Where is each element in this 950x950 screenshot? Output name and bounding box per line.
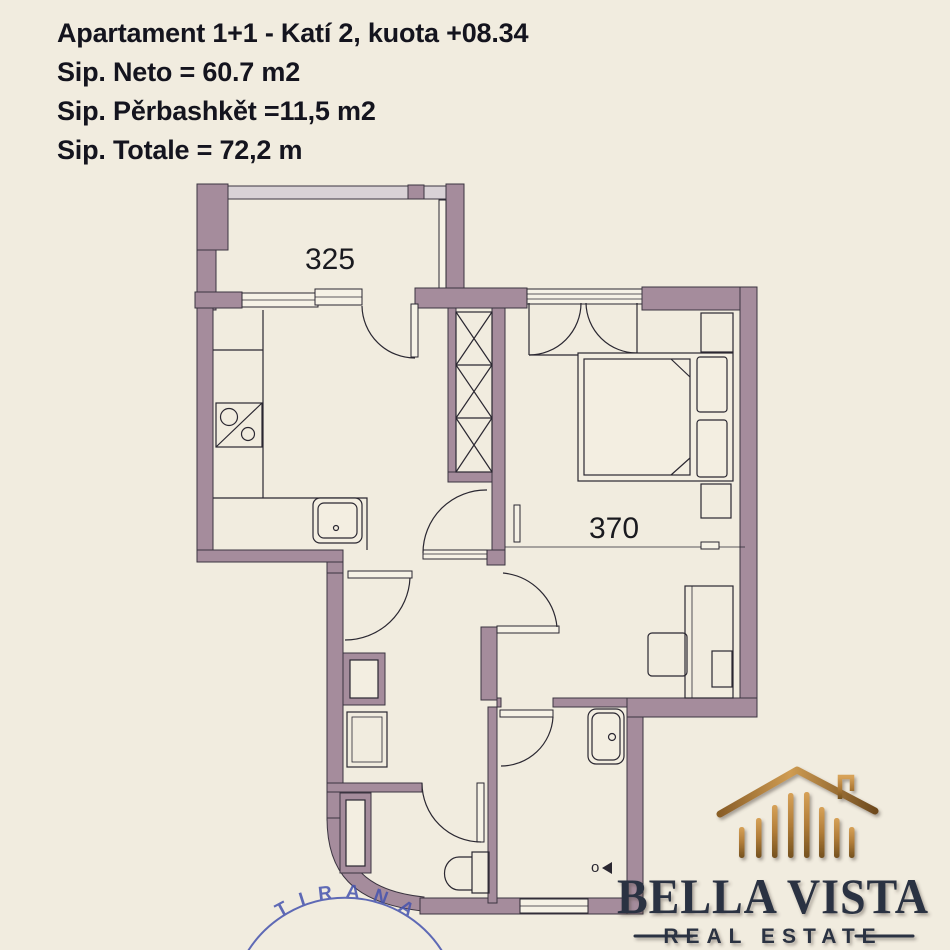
- bedroom-window: [527, 289, 642, 304]
- bedroom-door-swing: [503, 573, 557, 627]
- closet-1-interior: [350, 660, 378, 698]
- stamp-text: TIRANA: [272, 881, 429, 928]
- casement-left-leaf: [529, 303, 578, 355]
- casement-right-swing: [586, 303, 637, 353]
- bedroom-furniture: [505, 313, 745, 698]
- stove-diagonal: [216, 403, 262, 447]
- toilet-tank: [472, 852, 489, 893]
- logo-tagline: REAL ESTATE: [663, 925, 882, 948]
- desk-chair: [648, 633, 687, 676]
- bathroom-fixtures: o: [445, 709, 625, 893]
- bathroom-door-swing: [501, 717, 553, 766]
- hall-bedroom-wall-upper: [492, 308, 505, 565]
- double-bed: [578, 353, 733, 481]
- wc-top-stub-wall: [327, 783, 422, 792]
- balcony-left-wall-upper: [197, 184, 228, 250]
- nightstand-top: [701, 313, 733, 352]
- kitchen-bottom-wall: [197, 550, 343, 562]
- shaft-left-wall: [448, 308, 456, 472]
- balcony-railing-post: [408, 185, 424, 199]
- drain-marker-arrow-icon: [602, 862, 612, 874]
- top-wall-middle: [415, 288, 527, 308]
- floorplan-page: Apartament 1+1 - Katí 2, kuota +08.34 Si…: [0, 0, 950, 950]
- kitchen-pass-door-leaf: [423, 550, 487, 559]
- wc-door-leaf: [477, 783, 484, 842]
- balcony-side-window: [439, 200, 446, 290]
- drain-marker-label: o: [591, 859, 599, 876]
- stove-burner-small: [242, 428, 255, 441]
- kitchen-door-post: [327, 562, 343, 573]
- walls: [195, 184, 757, 914]
- dimension-tick: [701, 542, 719, 549]
- balcony-door-swing: [362, 306, 415, 358]
- floor-plan-drawing: o 325 370 TIRANA: [0, 0, 950, 950]
- kitchen-top-wall-left: [195, 292, 242, 308]
- bathroom-top-wall: [553, 698, 627, 707]
- balcony-door-leaf: [411, 304, 418, 357]
- kitchen-pass-door-swing: [423, 490, 487, 553]
- hall-bedroom-wall-lower: [481, 627, 497, 700]
- logo-bars-icon: [739, 792, 855, 858]
- casement-left-swing: [529, 303, 581, 355]
- bathroom-door-leaf: [500, 710, 553, 717]
- nightstand-bottom: [701, 484, 731, 518]
- stamp: TIRANA: [245, 881, 445, 950]
- wc-door-swing: [422, 783, 481, 842]
- kitchen-left-wall: [197, 308, 213, 562]
- kitchen-fixtures: [213, 310, 367, 550]
- toilet-bowl: [445, 857, 473, 890]
- bedroom-bottom-wall: [627, 698, 757, 717]
- desk-shelf: [712, 651, 732, 687]
- bedroom-right-wall: [740, 287, 757, 717]
- bathtub: [588, 709, 624, 764]
- cabinet-2-inner: [352, 717, 382, 762]
- shaft-x-pattern: [456, 312, 492, 472]
- hall-closets: [340, 653, 387, 873]
- closet-3-interior: [346, 800, 365, 866]
- cabinet-2: [347, 712, 387, 767]
- logo-company-name: BELLA VISTA: [617, 868, 929, 924]
- stove-burner-large: [221, 409, 238, 426]
- balcony-right-wall: [446, 184, 464, 292]
- logo: BELLA VISTA REAL ESTATE: [617, 770, 929, 948]
- kitchen-pass-stub: [487, 550, 505, 565]
- hall-door-leaf: [348, 571, 412, 578]
- shaft-unit: [456, 312, 492, 472]
- balcony-dimension-label: 325: [305, 243, 355, 276]
- bedroom-dimension-label: 370: [589, 512, 639, 545]
- radiator: [514, 505, 520, 542]
- hall-door-swing: [345, 578, 410, 640]
- bedroom-door-leaf: [497, 626, 559, 633]
- bathroom-door-stub: [497, 698, 501, 707]
